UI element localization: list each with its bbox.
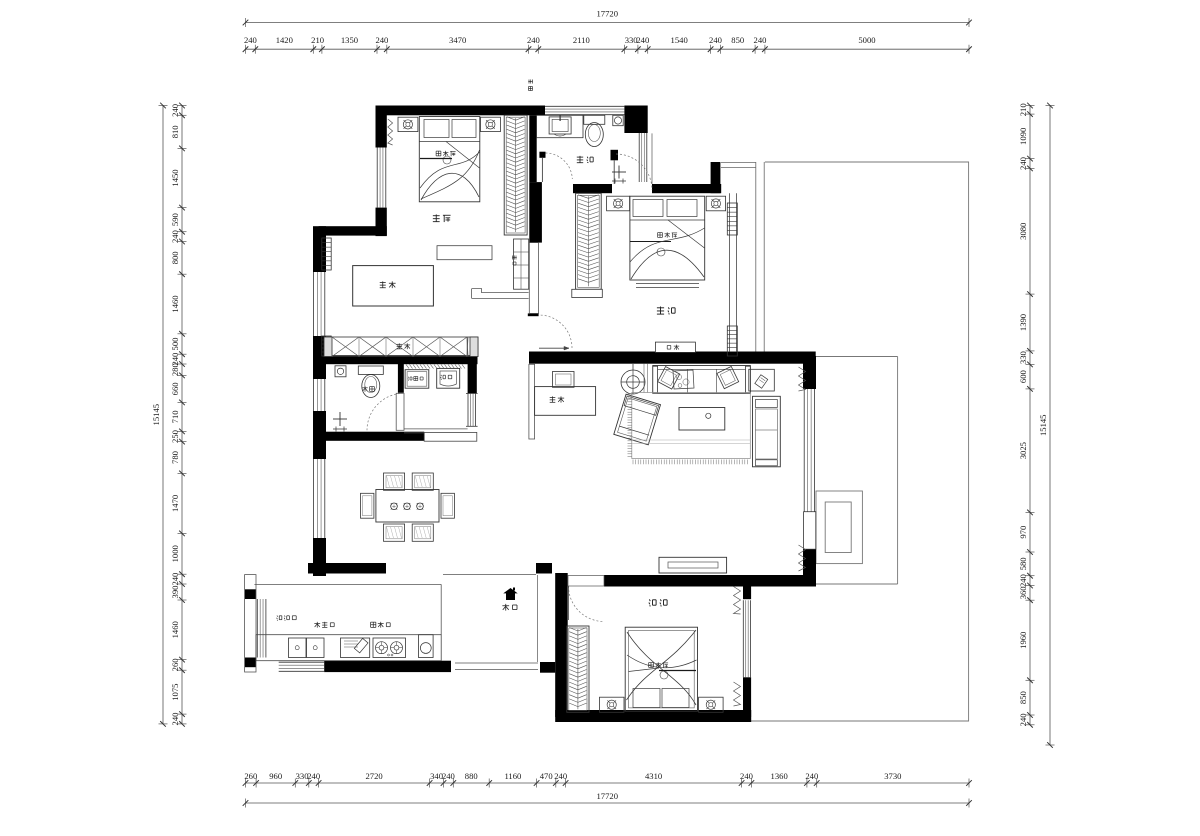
svg-text:970: 970 bbox=[1018, 526, 1028, 539]
svg-text:3730: 3730 bbox=[884, 771, 901, 781]
svg-text:260: 260 bbox=[244, 771, 257, 781]
svg-text:660: 660 bbox=[170, 382, 180, 395]
svg-text:17720: 17720 bbox=[597, 9, 618, 19]
svg-text:3080: 3080 bbox=[1018, 223, 1028, 240]
svg-text:3470: 3470 bbox=[449, 35, 466, 45]
svg-text:240: 240 bbox=[709, 35, 722, 45]
svg-text:240: 240 bbox=[636, 35, 649, 45]
svg-text:850: 850 bbox=[731, 35, 744, 45]
svg-text:590: 590 bbox=[170, 213, 180, 226]
svg-text:580: 580 bbox=[1018, 557, 1028, 570]
svg-text:1460: 1460 bbox=[170, 621, 180, 638]
svg-text:240: 240 bbox=[1018, 574, 1028, 587]
svg-text:500: 500 bbox=[170, 338, 180, 351]
svg-text:2110: 2110 bbox=[573, 35, 590, 45]
svg-text:710: 710 bbox=[170, 410, 180, 423]
svg-text:240: 240 bbox=[527, 35, 540, 45]
svg-text:4310: 4310 bbox=[645, 771, 662, 781]
svg-text:240: 240 bbox=[170, 713, 180, 726]
svg-text:1450: 1450 bbox=[170, 169, 180, 186]
svg-text:250: 250 bbox=[170, 430, 180, 443]
svg-text:1420: 1420 bbox=[276, 35, 293, 45]
svg-text:280: 280 bbox=[170, 363, 180, 376]
svg-text:260: 260 bbox=[170, 658, 180, 671]
svg-text:17720: 17720 bbox=[597, 791, 618, 801]
svg-text:780: 780 bbox=[170, 451, 180, 464]
svg-text:5000: 5000 bbox=[858, 35, 875, 45]
svg-text:240: 240 bbox=[805, 771, 818, 781]
svg-text:240: 240 bbox=[170, 573, 180, 586]
svg-text:960: 960 bbox=[269, 771, 282, 781]
svg-text:240: 240 bbox=[170, 230, 180, 243]
svg-text:600: 600 bbox=[1018, 370, 1028, 383]
svg-text:240: 240 bbox=[442, 771, 455, 781]
svg-text:1540: 1540 bbox=[671, 35, 688, 45]
svg-text:1360: 1360 bbox=[771, 771, 788, 781]
svg-text:15145: 15145 bbox=[1038, 415, 1048, 436]
svg-text:240: 240 bbox=[1018, 713, 1028, 726]
svg-text:850: 850 bbox=[1018, 691, 1028, 704]
svg-text:1390: 1390 bbox=[1018, 314, 1028, 331]
svg-text:360: 360 bbox=[1018, 586, 1028, 599]
svg-text:810: 810 bbox=[170, 125, 180, 138]
svg-text:240: 240 bbox=[554, 771, 567, 781]
svg-text:240: 240 bbox=[307, 771, 320, 781]
svg-text:1000: 1000 bbox=[170, 545, 180, 562]
svg-text:240: 240 bbox=[244, 35, 257, 45]
svg-text:880: 880 bbox=[465, 771, 478, 781]
svg-text:240: 240 bbox=[740, 771, 753, 781]
svg-text:470: 470 bbox=[540, 771, 553, 781]
svg-text:240: 240 bbox=[754, 35, 767, 45]
svg-text:15145: 15145 bbox=[151, 404, 161, 425]
svg-text:1960: 1960 bbox=[1018, 632, 1028, 649]
svg-text:1460: 1460 bbox=[170, 295, 180, 312]
svg-text:240: 240 bbox=[170, 104, 180, 117]
svg-text:390: 390 bbox=[170, 586, 180, 599]
svg-text:800: 800 bbox=[170, 251, 180, 264]
svg-text:330: 330 bbox=[1018, 351, 1028, 364]
svg-text:210: 210 bbox=[311, 35, 324, 45]
svg-text:240: 240 bbox=[375, 35, 388, 45]
svg-text:2720: 2720 bbox=[366, 771, 383, 781]
svg-text:1090: 1090 bbox=[1018, 128, 1028, 145]
svg-text:1470: 1470 bbox=[170, 495, 180, 512]
svg-text:1075: 1075 bbox=[170, 684, 180, 701]
svg-text:240: 240 bbox=[1018, 157, 1028, 170]
svg-text:3025: 3025 bbox=[1018, 442, 1028, 459]
svg-text:1160: 1160 bbox=[504, 771, 521, 781]
svg-text:210: 210 bbox=[1018, 103, 1028, 116]
svg-text:1350: 1350 bbox=[341, 35, 358, 45]
